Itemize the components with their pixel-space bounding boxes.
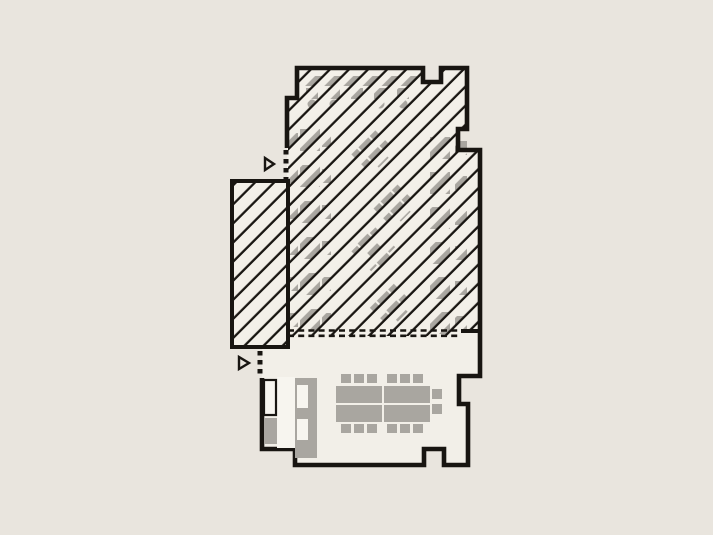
chair [432, 389, 442, 399]
chair [341, 374, 351, 383]
chair [354, 374, 364, 383]
chair [400, 374, 410, 383]
conference-table [384, 405, 430, 422]
chair [413, 374, 423, 383]
floor-plan [0, 0, 713, 535]
chair [341, 424, 351, 433]
floor-plan-canvas [0, 0, 713, 535]
chair [432, 404, 442, 414]
cabinet-shelf [297, 385, 308, 408]
chair [367, 424, 377, 433]
chair [413, 424, 423, 433]
storage-box [264, 418, 277, 444]
chair [400, 424, 410, 433]
chair [367, 374, 377, 383]
conference-table [336, 405, 382, 422]
conference-table [384, 386, 430, 403]
chair [354, 424, 364, 433]
annex-room-hatch [232, 181, 288, 347]
conference-table [336, 386, 382, 403]
sideboard-panel [277, 377, 295, 448]
outlined-cabinet [264, 380, 276, 415]
chair [387, 424, 397, 433]
chair [387, 374, 397, 383]
hatch-overlay [288, 68, 480, 336]
cabinet-shelf [297, 419, 308, 440]
